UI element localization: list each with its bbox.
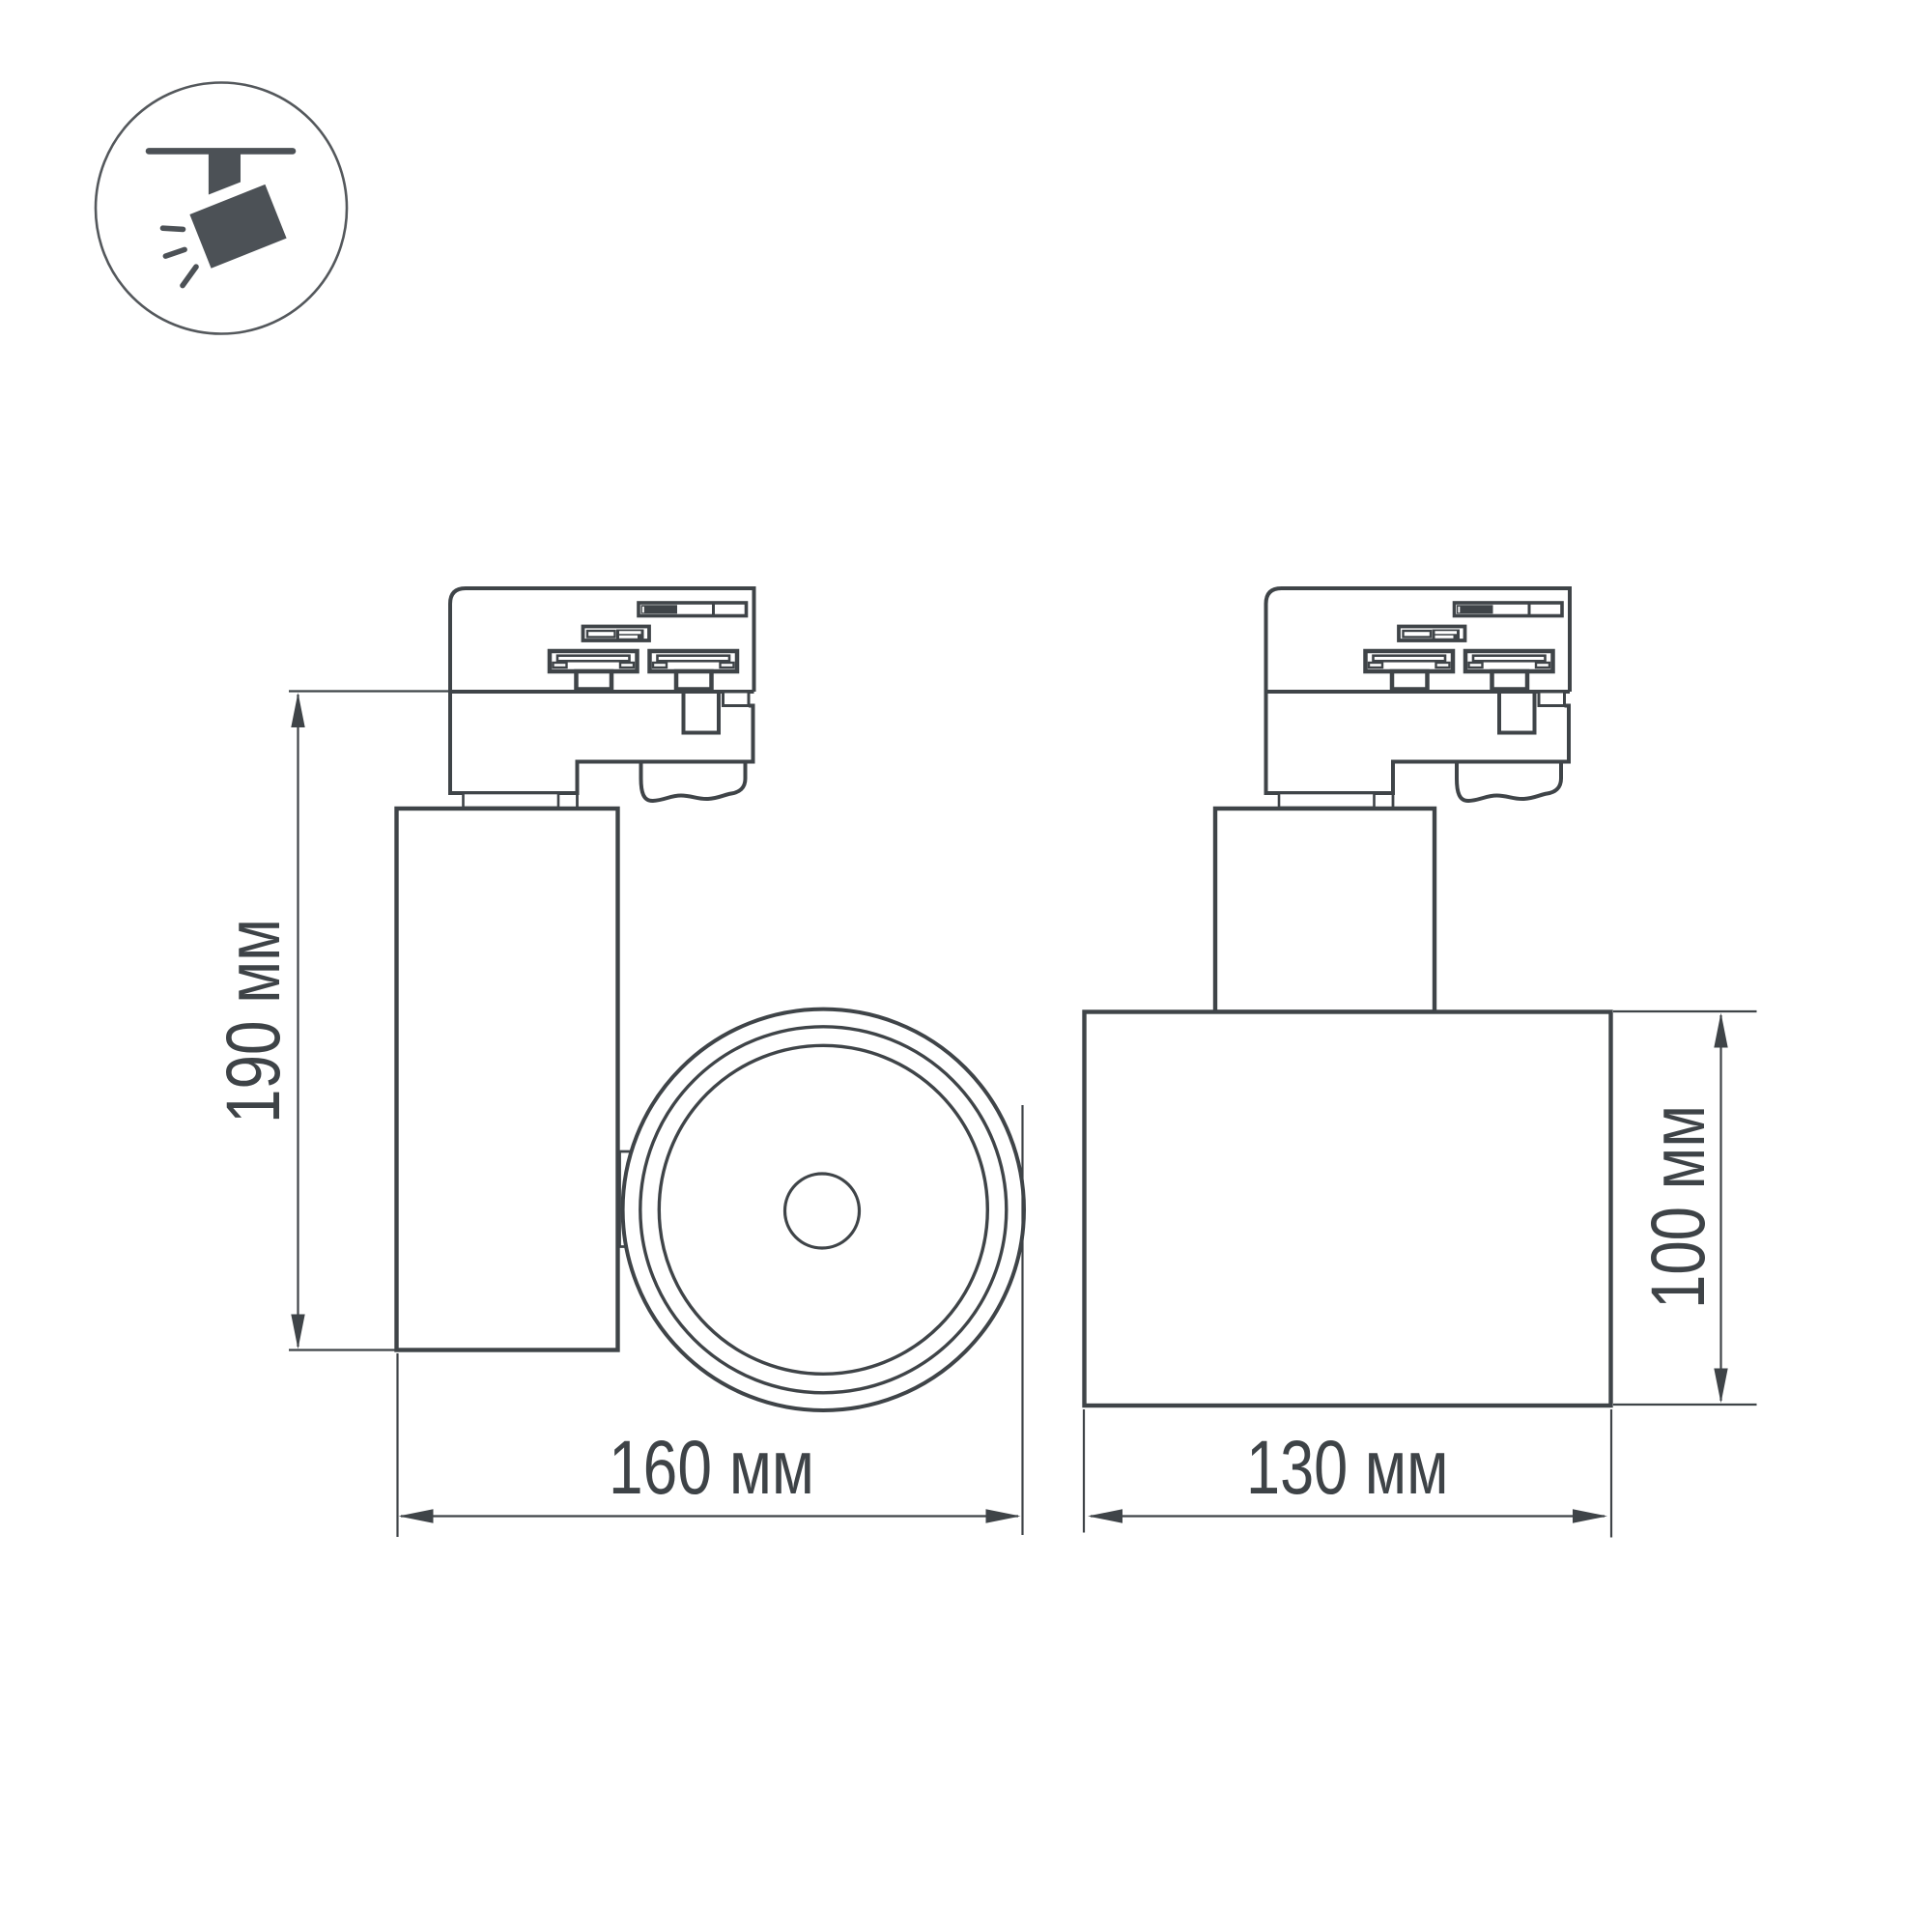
- svg-text:100 мм: 100 мм: [1634, 1105, 1720, 1309]
- svg-text:130 мм: 130 мм: [1246, 1424, 1449, 1510]
- svg-text:160 мм: 160 мм: [609, 1424, 814, 1510]
- svg-text:190 мм: 190 мм: [210, 919, 296, 1123]
